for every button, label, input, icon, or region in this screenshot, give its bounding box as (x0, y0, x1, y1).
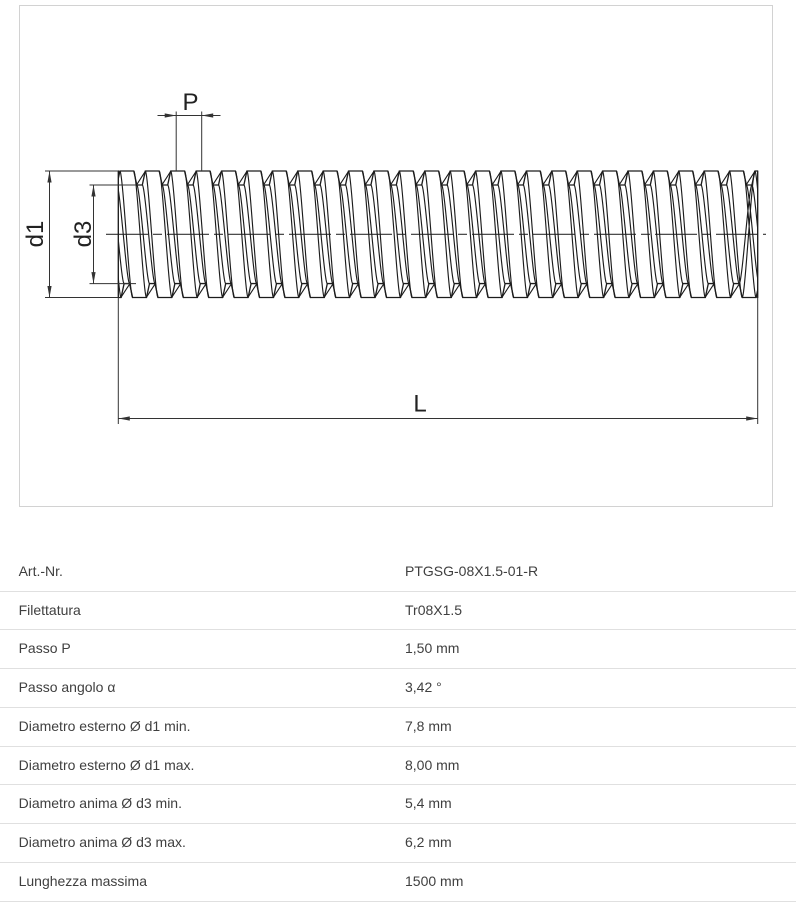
svg-text:d3: d3 (70, 221, 97, 248)
svg-text:L: L (413, 390, 426, 417)
svg-text:d1: d1 (22, 221, 49, 248)
svg-text:P: P (182, 89, 198, 116)
